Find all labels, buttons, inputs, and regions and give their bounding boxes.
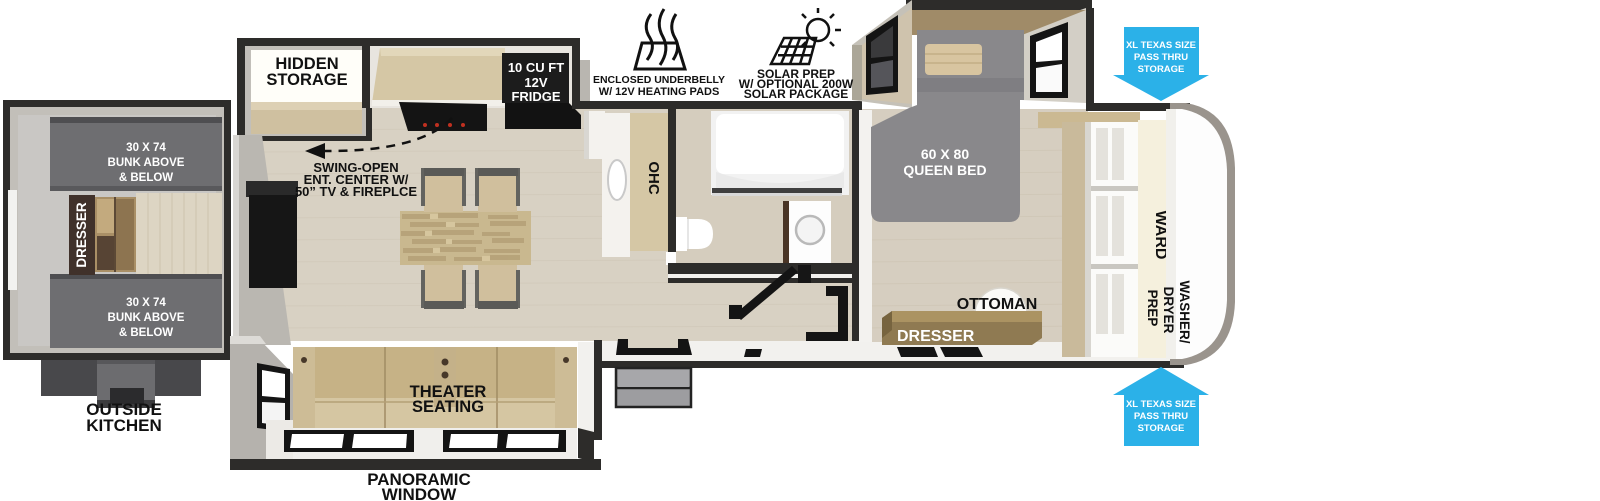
svg-text:WASHER/: WASHER/ [1177,280,1192,343]
svg-text:50” TV & FIREPLCE: 50” TV & FIREPLCE [295,184,417,199]
svg-text:& BELOW: & BELOW [119,172,173,184]
svg-text:OHC: OHC [645,161,662,195]
svg-text:SOLAR PACKAGE: SOLAR PACKAGE [744,87,848,101]
svg-text:BUNK ABOVE: BUNK ABOVE [108,312,185,324]
svg-text:BUNK ABOVE: BUNK ABOVE [108,157,185,169]
svg-text:FRIDGE: FRIDGE [511,89,560,104]
svg-text:OTTOMAN: OTTOMAN [957,296,1038,313]
svg-text:STORAGE: STORAGE [1138,423,1185,434]
svg-text:XL TEXAS SIZE: XL TEXAS SIZE [1126,40,1196,51]
svg-text:60 X 80: 60 X 80 [921,146,969,162]
svg-text:STORAGE: STORAGE [266,71,347,89]
svg-text:PREP: PREP [1145,290,1160,327]
svg-text:DRYER: DRYER [1161,287,1176,334]
svg-text:ENCLOSED UNDERBELLY: ENCLOSED UNDERBELLY [593,74,725,86]
svg-text:WINDOW: WINDOW [382,485,458,501]
svg-text:DRESSER: DRESSER [897,328,975,345]
svg-text:W/ 12V HEATING PADS: W/ 12V HEATING PADS [599,86,720,98]
svg-text:DRESSER: DRESSER [74,202,89,268]
svg-text:QUEEN BED: QUEEN BED [903,162,986,178]
svg-text:& BELOW: & BELOW [119,327,173,339]
svg-text:STORAGE: STORAGE [1138,64,1185,75]
svg-text:SEATING: SEATING [412,398,484,416]
svg-text:KITCHEN: KITCHEN [86,416,162,435]
svg-text:PASS THRU: PASS THRU [1134,411,1188,422]
svg-text:12V: 12V [524,75,547,90]
svg-text:PASS THRU: PASS THRU [1134,52,1188,63]
svg-text:30 X 74: 30 X 74 [126,142,166,154]
svg-text:XL TEXAS SIZE: XL TEXAS SIZE [1126,399,1196,410]
svg-text:30 X 74: 30 X 74 [126,297,166,309]
svg-text:10 CU FT: 10 CU FT [508,60,564,75]
